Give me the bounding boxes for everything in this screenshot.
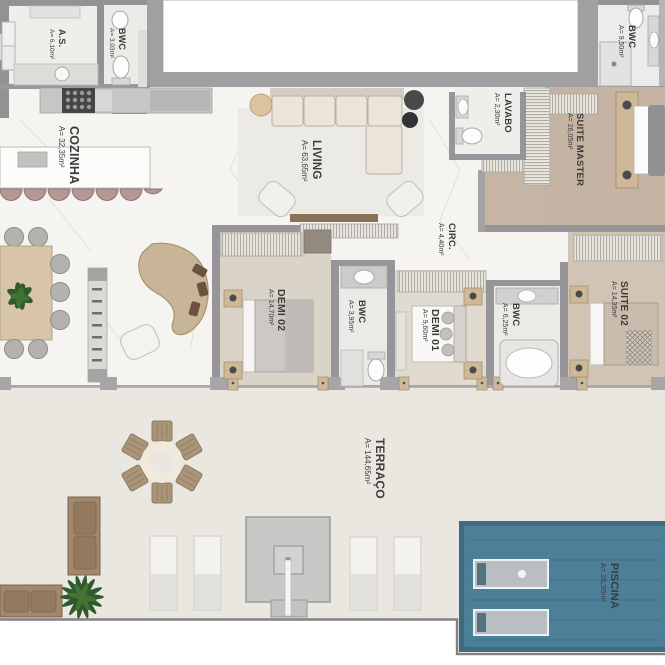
svg-text:A= 26,95m²: A= 26,95m² [599, 563, 608, 602]
svg-text:DEMI 02: DEMI 02 [275, 289, 287, 331]
svg-text:SUITE MASTER: SUITE MASTER [574, 113, 585, 186]
svg-text:A= 2,30m²: A= 2,30m² [493, 93, 500, 126]
svg-text:PISCINA: PISCINA [608, 563, 620, 609]
svg-text:A= 4,40m²: A= 4,40m² [437, 223, 444, 256]
svg-text:A= 26,05m²: A= 26,05m² [566, 113, 573, 150]
svg-text:A= 63,65m²: A= 63,65m² [300, 140, 309, 182]
svg-text:A= 3,03m²: A= 3,03m² [108, 28, 115, 59]
svg-text:A= 9,60m²: A= 9,60m² [421, 309, 428, 342]
svg-text:A= 14,35m²: A= 14,35m² [610, 281, 617, 318]
svg-text:CIRC.: CIRC. [446, 223, 457, 250]
svg-text:BWC: BWC [626, 25, 637, 48]
svg-text:A= 6,10m²: A= 6,10m² [48, 29, 55, 60]
svg-text:DEMI 01: DEMI 01 [429, 309, 441, 351]
svg-text:COZINHA: COZINHA [67, 126, 81, 184]
svg-text:SUITE 02: SUITE 02 [618, 281, 629, 326]
svg-text:A= 14,70m²: A= 14,70m² [267, 289, 274, 326]
svg-text:BWC: BWC [510, 303, 521, 326]
svg-text:A= 144,65m²: A= 144,65m² [363, 438, 372, 484]
svg-text:BWC: BWC [117, 28, 127, 50]
svg-text:LAVABO: LAVABO [502, 93, 513, 133]
svg-text:BWC: BWC [356, 300, 367, 323]
svg-text:A.S.: A.S. [57, 29, 67, 47]
svg-text:TERRAÇO: TERRAÇO [373, 438, 387, 499]
svg-text:LIVING: LIVING [310, 140, 322, 180]
svg-text:A= 9,50m²: A= 9,50m² [617, 25, 624, 58]
svg-text:A= 3,95m²: A= 3,95m² [347, 300, 354, 333]
svg-text:A= 6,25m²: A= 6,25m² [501, 303, 508, 336]
svg-text:A= 32,35m²: A= 32,35m² [57, 126, 66, 168]
